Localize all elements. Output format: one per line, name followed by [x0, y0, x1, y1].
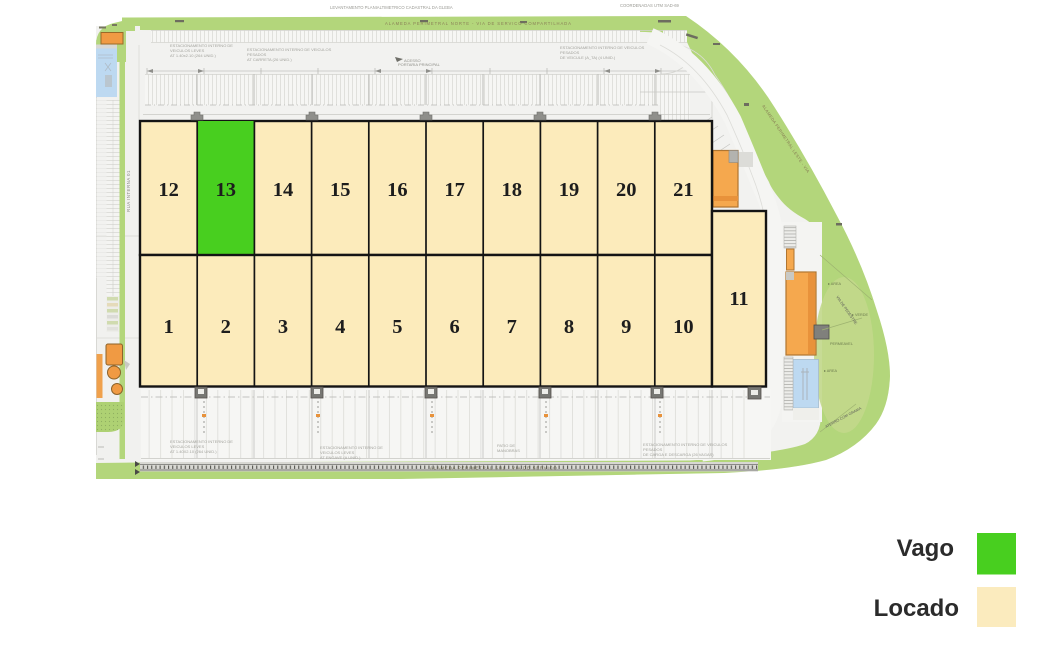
svg-text:1: 1	[163, 316, 173, 338]
svg-text:4: 4	[335, 316, 345, 338]
svg-text:10: 10	[673, 316, 694, 338]
svg-text:7: 7	[507, 316, 517, 338]
svg-text:LEVANTAMENTO PLANIALTIMETRICO: LEVANTAMENTO PLANIALTIMETRICO CADASTRAL …	[330, 5, 453, 10]
svg-text:8: 8	[564, 316, 574, 338]
svg-text:PORTARIA PRINCIPAL: PORTARIA PRINCIPAL	[398, 62, 441, 67]
svg-text:21: 21	[673, 179, 694, 201]
svg-text:DE VEICULE (A_TA) (4 UNID.): DE VEICULE (A_TA) (4 UNID.)	[560, 55, 616, 60]
svg-text:ALAMEDA PERIMETRAL NORTE - VIA: ALAMEDA PERIMETRAL NORTE - VIA DE SERVIC…	[385, 21, 572, 26]
svg-text:19: 19	[559, 179, 580, 201]
svg-text:20: 20	[616, 179, 637, 201]
svg-text:18: 18	[502, 179, 523, 201]
svg-text:13: 13	[216, 179, 237, 201]
svg-text:3: 3	[278, 316, 288, 338]
svg-text:AT ENGAVE (A UNID.): AT ENGAVE (A UNID.)	[320, 455, 361, 460]
svg-text:▸ AREA: ▸ AREA	[824, 369, 838, 373]
svg-text:14: 14	[273, 179, 294, 201]
svg-text:AT 1.40x2.10 (264 UNID.): AT 1.40x2.10 (264 UNID.)	[170, 53, 217, 58]
svg-text:Vago: Vago	[897, 535, 954, 562]
svg-text:Locado: Locado	[874, 595, 959, 622]
svg-text:6: 6	[449, 316, 459, 338]
svg-text:RUA INTERNA 01: RUA INTERNA 01	[126, 170, 131, 212]
svg-text:COORDENADAS UTM SAD-69: COORDENADAS UTM SAD-69	[620, 3, 680, 8]
svg-text:16: 16	[387, 179, 408, 201]
svg-text:▸ AREA: ▸ AREA	[828, 282, 842, 286]
svg-text:AT 1.40X2.10 (264 UNID.): AT 1.40X2.10 (264 UNID.)	[170, 449, 217, 454]
svg-text:PERMEAVEL: PERMEAVEL	[830, 342, 853, 346]
svg-text:12: 12	[158, 179, 179, 201]
svg-text:11: 11	[729, 288, 748, 310]
svg-text:ALAMEDA PERIMETRAL SUL - VIA D: ALAMEDA PERIMETRAL SUL - VIA DE SERVICO	[430, 466, 558, 471]
svg-text:2: 2	[221, 316, 231, 338]
svg-text:▸ VERDE: ▸ VERDE	[852, 313, 869, 317]
svg-text:AT CARRETA (26 UNID.): AT CARRETA (26 UNID.)	[247, 57, 292, 62]
svg-text:DE CARGA E DESCARGA (26 VAGAS): DE CARGA E DESCARGA (26 VAGAS)	[643, 452, 714, 457]
svg-text:15: 15	[330, 179, 351, 201]
svg-text:MANOBRAS: MANOBRAS	[497, 448, 520, 453]
svg-text:5: 5	[392, 316, 402, 338]
svg-text:17: 17	[444, 179, 465, 201]
svg-text:9: 9	[621, 316, 631, 338]
